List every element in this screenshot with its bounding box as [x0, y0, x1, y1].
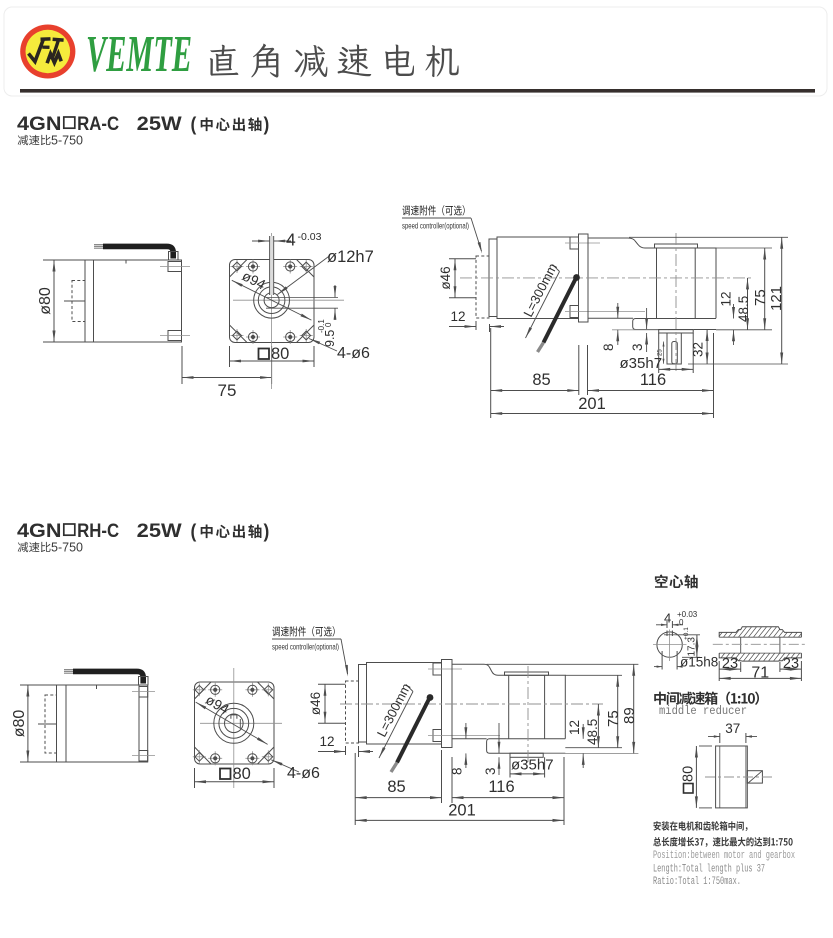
svg-text:201: 201: [448, 802, 476, 820]
svg-text:201: 201: [578, 395, 606, 413]
svg-text:37: 37: [725, 721, 740, 736]
svg-text:speed controller(optional): speed controller(optional): [272, 642, 339, 652]
svg-text:L=300mm: L=300mm: [520, 261, 560, 320]
svg-text:ø35h7: ø35h7: [620, 355, 663, 372]
svg-text:12: 12: [719, 291, 734, 306]
svg-text:middle reducer: middle reducer: [659, 705, 747, 718]
svg-text:Length:Total length plus 37: Length:Total length plus 37: [653, 864, 765, 876]
svg-text:89: 89: [621, 707, 638, 724]
svg-text:25W: 25W: [137, 520, 183, 542]
svg-text:48.5: 48.5: [736, 296, 751, 322]
svg-text:75: 75: [752, 289, 769, 306]
svg-text:ø15h8: ø15h8: [680, 654, 718, 669]
svg-text:71: 71: [751, 665, 769, 682]
svg-text:+0.1: +0.1: [683, 627, 690, 640]
svg-text:ø35h7: ø35h7: [511, 757, 554, 774]
svg-text:3: 3: [483, 767, 498, 775]
svg-text:4: 4: [286, 230, 296, 250]
svg-text:8: 8: [601, 343, 616, 351]
svg-text:80: 80: [271, 345, 289, 363]
svg-text:4: 4: [664, 611, 671, 626]
svg-text:-0.03: -0.03: [298, 231, 322, 243]
svg-text:(: (: [191, 114, 197, 136]
svg-text:12: 12: [319, 734, 334, 749]
svg-text:12: 12: [567, 720, 582, 735]
svg-text:3: 3: [630, 343, 645, 351]
svg-text:25W: 25W: [137, 113, 183, 135]
svg-text:75: 75: [218, 381, 237, 400]
svg-text:32: 32: [691, 342, 706, 357]
svg-text:Position:between motor and gea: Position:between motor and gearbox: [653, 850, 795, 862]
svg-text:-0.1: -0.1: [317, 319, 326, 333]
svg-text:ø12h7: ø12h7: [327, 248, 374, 266]
svg-text:85: 85: [532, 371, 550, 389]
svg-text:L=300mm: L=300mm: [374, 681, 414, 740]
svg-text:116: 116: [640, 371, 666, 389]
svg-text:(: (: [191, 521, 197, 543]
svg-text:4GN: 4GN: [17, 113, 62, 135]
svg-text:85: 85: [387, 778, 405, 796]
svg-text:ø46: ø46: [308, 692, 323, 715]
svg-text:116: 116: [488, 778, 514, 796]
svg-text:): ): [264, 521, 270, 543]
svg-text:ø80: ø80: [11, 710, 28, 738]
svg-text:4-ø6: 4-ø6: [337, 345, 370, 362]
svg-text:RH-C: RH-C: [77, 520, 119, 542]
svg-text:12: 12: [450, 309, 465, 324]
svg-text:23: 23: [722, 656, 738, 672]
svg-text:75: 75: [605, 710, 622, 727]
svg-text:0: 0: [679, 618, 684, 627]
svg-text:speed controller(optional): speed controller(optional): [402, 221, 469, 231]
svg-text:ø46: ø46: [438, 266, 453, 289]
svg-text:80: 80: [233, 765, 251, 783]
svg-text:ø94: ø94: [203, 691, 232, 717]
svg-text:4-ø6: 4-ø6: [287, 765, 320, 782]
svg-text:80: 80: [681, 766, 697, 782]
svg-text:5-750: 5-750: [51, 540, 83, 554]
svg-text:4GN: 4GN: [17, 520, 62, 542]
svg-text:48.5: 48.5: [585, 719, 600, 745]
svg-text:23: 23: [783, 656, 799, 672]
svg-text:121: 121: [768, 286, 785, 311]
svg-text:): ): [264, 114, 270, 136]
svg-text:5-750: 5-750: [51, 133, 83, 147]
svg-text:RA-C: RA-C: [77, 113, 119, 135]
svg-text:Ratio:Total 1:750max.: Ratio:Total 1:750max.: [653, 876, 741, 888]
svg-text:ø80: ø80: [37, 287, 54, 315]
